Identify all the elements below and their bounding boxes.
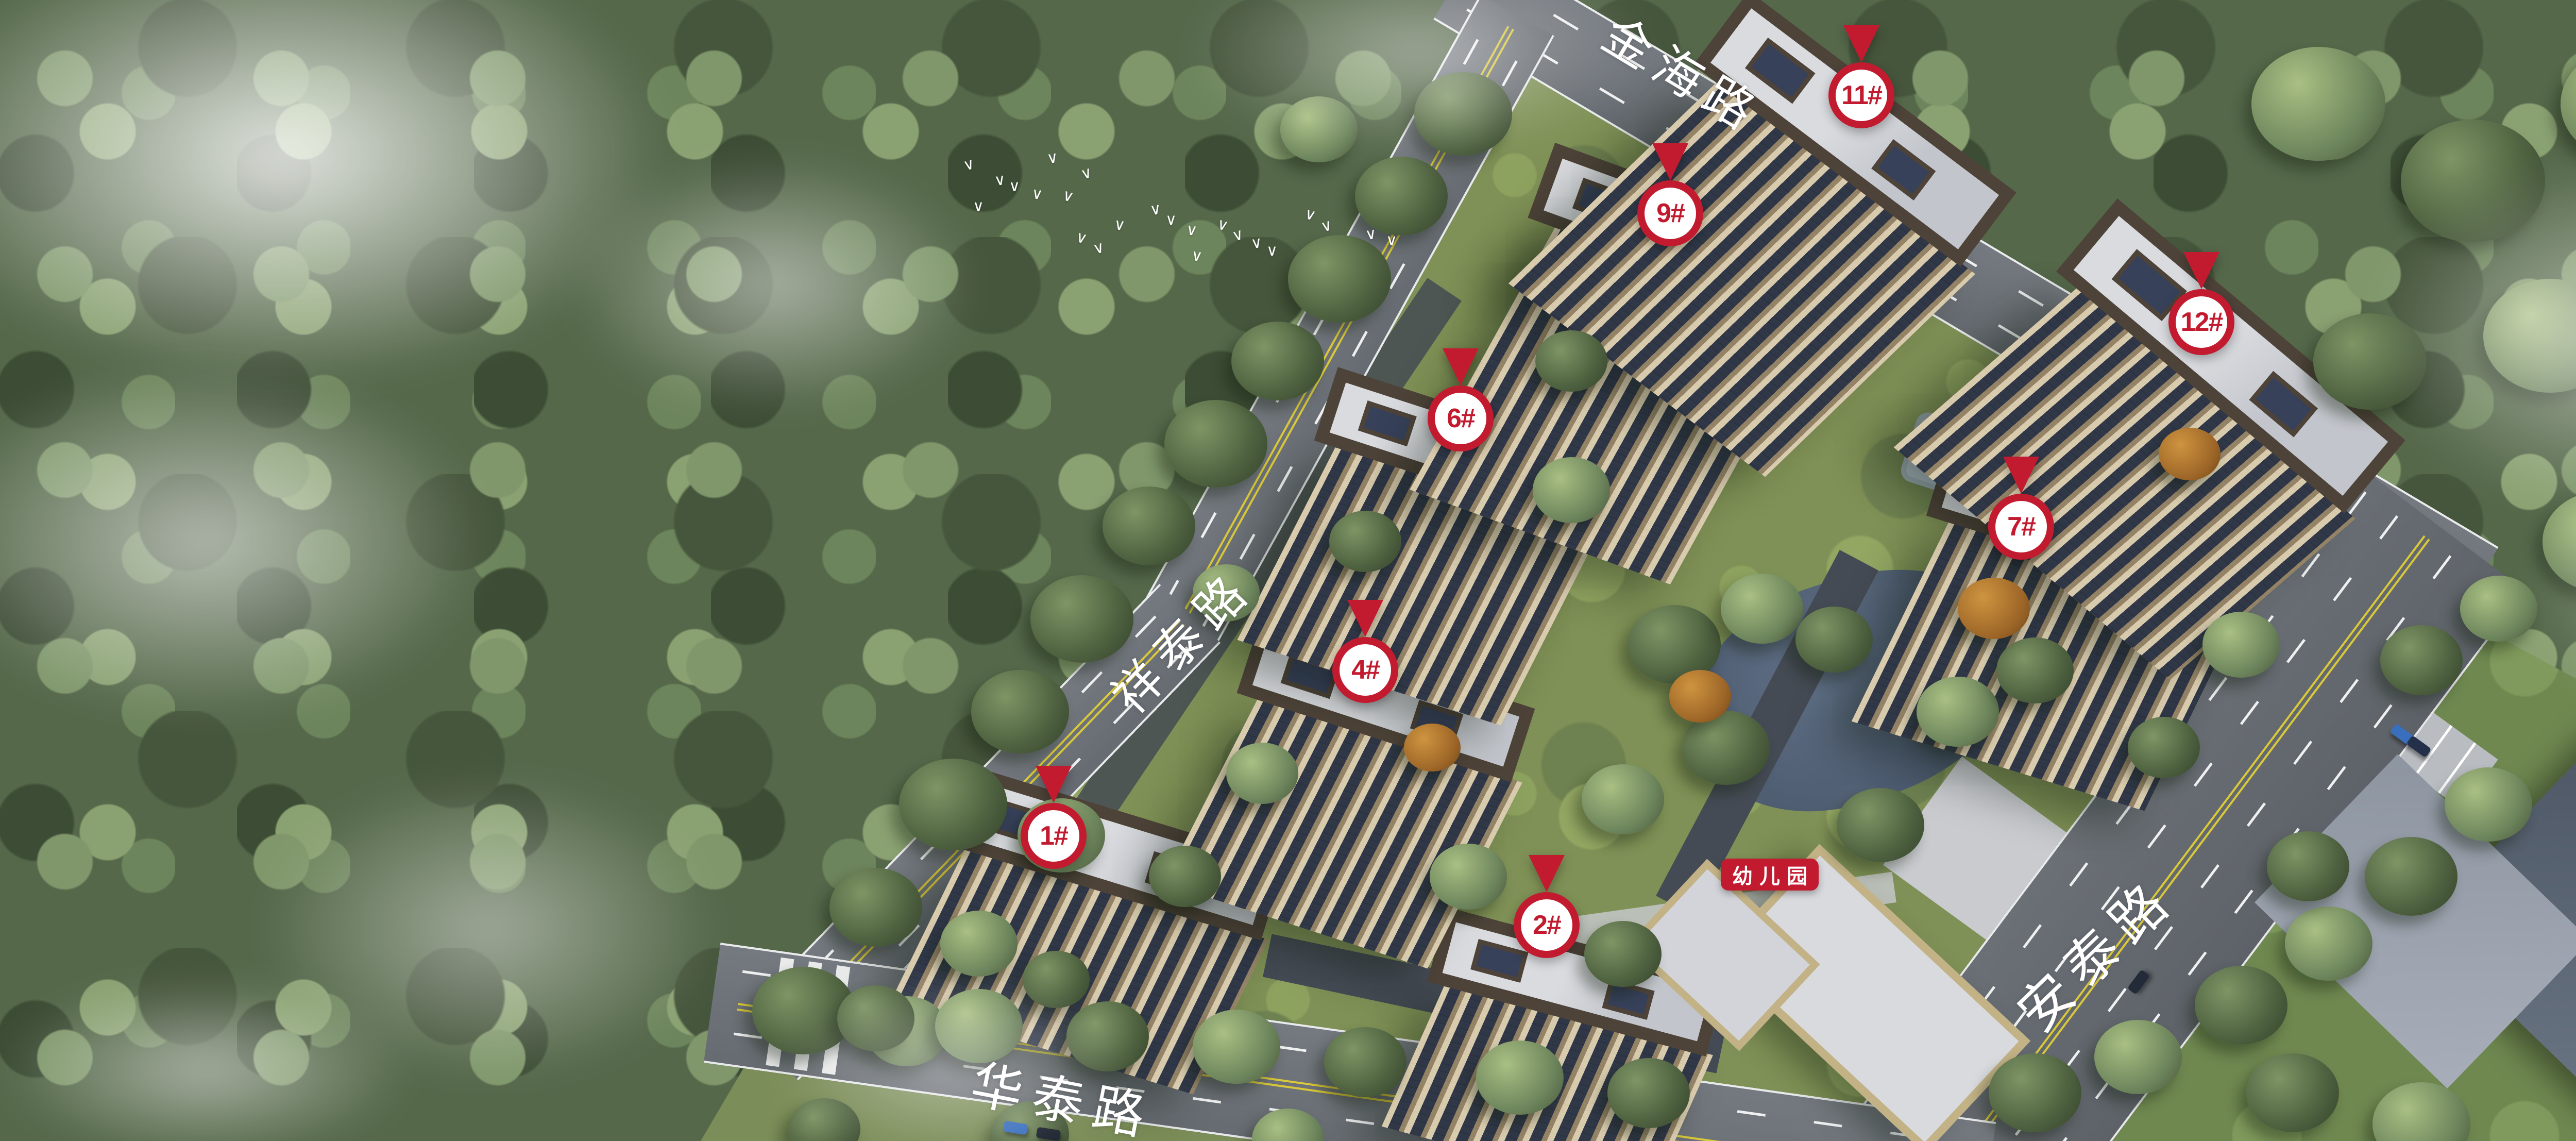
- tree: [1721, 574, 1803, 644]
- tree: [1329, 511, 1401, 572]
- building-marker-1: 1#: [1021, 771, 1087, 869]
- tree: [1164, 400, 1267, 488]
- kindergarten-badge: 幼儿园: [1721, 859, 1819, 891]
- tree: [1837, 788, 1924, 863]
- building-marker-label: 6#: [1428, 385, 1494, 451]
- building-marker-7: 7#: [1988, 462, 2054, 560]
- roof-vent: [1872, 139, 1936, 200]
- tree: [1324, 1027, 1406, 1097]
- tree: [1231, 322, 1324, 400]
- tree: [1193, 1010, 1280, 1084]
- marker-pointer: [1843, 25, 1879, 62]
- building-marker-4: 4#: [1332, 605, 1398, 703]
- tree: [1607, 1058, 1690, 1128]
- marker-pointer: [1347, 600, 1383, 637]
- bird-icon: ∨: [1190, 248, 1204, 265]
- tree: [1917, 677, 1999, 747]
- bird-icon: ∨: [1113, 217, 1126, 234]
- bird-icon: ∨: [1386, 233, 1397, 248]
- tree: [1476, 1041, 1564, 1115]
- marker-pointer: [1529, 855, 1565, 892]
- roof-vent: [2249, 371, 2318, 438]
- tree: [2445, 767, 2532, 842]
- tree: [1996, 637, 2074, 703]
- bird-icon: ∨: [973, 199, 984, 214]
- tree: [1584, 921, 1662, 987]
- tree: [2285, 907, 2372, 981]
- marker-pointer: [1036, 766, 1072, 803]
- building-marker-9: 9#: [1637, 148, 1703, 246]
- tree: [2195, 966, 2287, 1045]
- tree: [1958, 578, 2030, 639]
- tree: [1795, 607, 1873, 673]
- building-marker-label: 1#: [1021, 803, 1087, 869]
- building-marker-label: 11#: [1828, 62, 1894, 128]
- building-marker-2: 2#: [1514, 860, 1580, 958]
- tree: [1030, 575, 1133, 663]
- marker-pointer: [2183, 252, 2219, 289]
- bird-icon: ∨: [1250, 235, 1263, 252]
- tree: [1533, 457, 1610, 523]
- tree: [1430, 844, 1507, 910]
- building-marker-label: 2#: [1514, 892, 1580, 958]
- tree: [1404, 724, 1461, 772]
- bird-icon: ∨: [1165, 212, 1177, 228]
- tree: [1535, 330, 1607, 392]
- bird-icon: ∨: [1009, 179, 1020, 194]
- tree: [1226, 743, 1298, 804]
- tree: [2365, 837, 2458, 916]
- roof-vent: [1358, 401, 1417, 447]
- bird-icon: ∨: [1266, 243, 1278, 259]
- building-marker-label: 9#: [1637, 180, 1703, 246]
- tree: [1288, 235, 1391, 323]
- bird-icon: ∨: [1030, 186, 1044, 203]
- tree: [2159, 428, 2221, 480]
- marker-pointer: [2003, 457, 2039, 494]
- tree: [1989, 1053, 2081, 1132]
- tree: [940, 911, 1018, 977]
- bird-icon: ∨: [1046, 150, 1059, 167]
- bird-icon: ∨: [993, 172, 1007, 189]
- tree: [1149, 846, 1221, 907]
- marker-pointer: [1652, 143, 1688, 180]
- building-marker-label: 12#: [2168, 289, 2234, 355]
- tree: [971, 670, 1069, 753]
- tree: [2380, 625, 2463, 695]
- building-marker-6: 6#: [1428, 354, 1494, 451]
- tree: [2128, 717, 2200, 778]
- building-marker-12: 12#: [2168, 257, 2234, 355]
- tree: [899, 759, 1007, 851]
- bird-icon: ∨: [1185, 222, 1198, 239]
- fog-patch: [567, 155, 979, 412]
- aerial-rendering: ∨∨∨∨∨∨∨∨∨∨∨∨∨∨∨∨∨∨∨∨∨∨∨ 金海路 祥泰路 安泰路 华泰路 …: [0, 0, 2576, 1141]
- tree: [2251, 47, 2385, 161]
- tree: [1669, 670, 1731, 723]
- building-marker-label: 7#: [1988, 494, 2054, 560]
- bird-icon: ∨: [1149, 202, 1162, 219]
- tree: [829, 868, 922, 947]
- tree: [1355, 157, 1448, 236]
- tree: [2094, 1020, 2182, 1095]
- bird-icon: ∨: [1364, 226, 1378, 243]
- tree: [2202, 612, 2280, 678]
- marker-pointer: [1443, 348, 1479, 385]
- tree: [2267, 831, 2349, 901]
- building-marker-11: 11#: [1828, 30, 1894, 128]
- tree: [1103, 486, 1195, 565]
- tree: [2246, 1053, 2339, 1132]
- building-marker-label: 4#: [1332, 637, 1398, 703]
- tree: [1582, 764, 1664, 834]
